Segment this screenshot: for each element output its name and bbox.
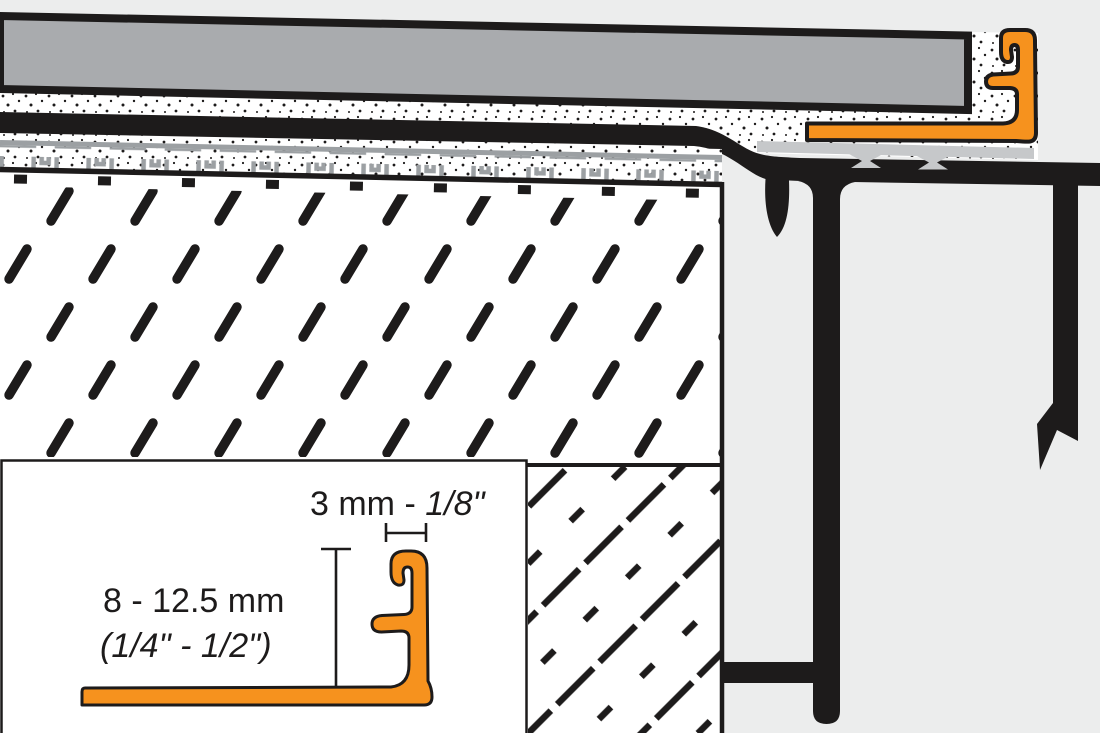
technical-drawing: 3 mm - 1/8" 8 - 12.5 mm (1/4" - 1/2") xyxy=(0,0,1100,733)
tile-layer xyxy=(0,16,968,110)
profile-anchor-leg xyxy=(720,662,820,683)
dim-label-height-metric: 8 - 12.5 mm xyxy=(103,582,284,620)
concrete-hatch-region xyxy=(528,467,722,733)
screed-hatch-region xyxy=(0,180,722,470)
profile-vertical-stem xyxy=(813,188,840,724)
dim-label-width: 3 mm - 1/8" xyxy=(310,485,486,523)
dim-label-height-imperial: (1/4" - 1/2") xyxy=(100,627,272,665)
profile-section-diagram: 3 mm - 1/8" 8 - 12.5 mm (1/4" - 1/2") xyxy=(0,0,1100,733)
